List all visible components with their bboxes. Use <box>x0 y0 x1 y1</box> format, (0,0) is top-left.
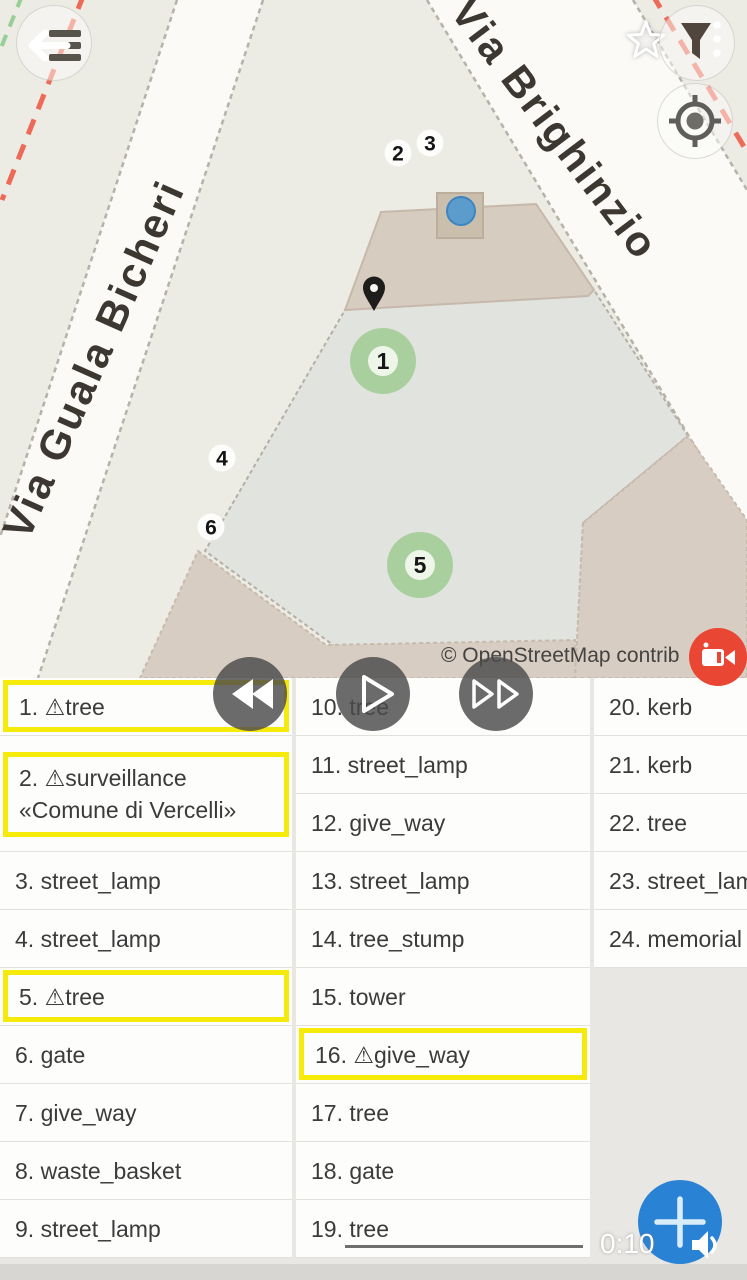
map-number-badge[interactable]: 6 <box>198 514 225 541</box>
list-item[interactable]: 9. street_lamp <box>0 1200 292 1258</box>
list-item[interactable]: 11. street_lamp <box>296 736 590 794</box>
list-item-label: 8. waste_basket <box>15 1155 292 1187</box>
video-camera-icon <box>697 636 739 678</box>
list-item[interactable]: 12. give_way <box>296 794 590 852</box>
list-item[interactable]: 20. kerb <box>594 678 747 736</box>
list-item-label: 12. give_way <box>311 807 590 839</box>
list-item-label: 11. street_lamp <box>311 749 590 781</box>
list-item-label: 20. kerb <box>609 691 747 723</box>
poi-list-column-3: 20. kerb21. kerb22. tree23. street_lamp2… <box>594 678 747 968</box>
list-item-label: 13. street_lamp <box>311 865 590 897</box>
filter-button[interactable] <box>659 5 735 81</box>
locate-me-button[interactable] <box>657 83 733 159</box>
gps-location-dot <box>447 197 475 225</box>
list-item[interactable]: 24. memorial <box>594 910 747 968</box>
svg-text:3: 3 <box>424 133 436 156</box>
play-icon <box>336 657 410 731</box>
list-item-label: 15. tower <box>311 981 590 1013</box>
back-arrow-list-icon <box>17 6 91 80</box>
gps-target-icon <box>658 84 732 158</box>
app-screen: Via Guala Bicheri Via Brighinzio 234615 … <box>0 0 747 1280</box>
list-item[interactable]: 23. street_lamp <box>594 852 747 910</box>
svg-text:5: 5 <box>414 552 427 578</box>
poi-list-column-2: 10. tree11. street_lamp12. give_way13. s… <box>296 678 590 1258</box>
svg-text:4: 4 <box>216 448 228 471</box>
list-item-label: 3. street_lamp <box>15 865 292 897</box>
list-item-label: 14. tree_stump <box>311 923 590 955</box>
video-timestamp: 0:10 <box>600 1228 655 1260</box>
map-view[interactable]: Via Guala Bicheri Via Brighinzio 234615 <box>0 0 747 678</box>
list-item-label: 4. street_lamp <box>15 923 292 955</box>
list-item[interactable]: 22. tree <box>594 794 747 852</box>
list-item[interactable]: 14. tree_stump <box>296 910 590 968</box>
poi-list-column-1: 1. ⚠tree2. ⚠surveillance«Comune di Verce… <box>0 678 292 1258</box>
list-item[interactable]: 13. street_lamp <box>296 852 590 910</box>
list-item-label: 6. gate <box>15 1039 292 1071</box>
list-item[interactable]: 7. give_way <box>0 1084 292 1142</box>
list-item-label: 23. street_lamp <box>609 865 747 897</box>
list-item-label: 21. kerb <box>609 749 747 781</box>
list-item[interactable]: 3. street_lamp <box>0 852 292 910</box>
rewind-button[interactable] <box>213 657 287 731</box>
video-progress-line <box>345 1245 583 1248</box>
back-button[interactable] <box>16 5 92 81</box>
svg-text:6: 6 <box>205 517 217 540</box>
poi-list: 1. ⚠tree2. ⚠surveillance«Comune di Verce… <box>0 678 747 1264</box>
list-item[interactable]: 4. street_lamp <box>0 910 292 968</box>
list-item-label: 2. ⚠surveillance <box>19 762 292 794</box>
list-item-label: 17. tree <box>311 1097 590 1129</box>
list-item-label: 5. ⚠tree <box>19 981 292 1013</box>
list-item-label-line2: «Comune di Vercelli» <box>19 794 292 826</box>
list-item[interactable]: 21. kerb <box>594 736 747 794</box>
list-item[interactable]: 2. ⚠surveillance«Comune di Vercelli» <box>0 736 292 852</box>
list-item[interactable]: 15. tower <box>296 968 590 1026</box>
speaker-icon[interactable] <box>686 1226 724 1264</box>
list-item-label: 22. tree <box>609 807 747 839</box>
list-item[interactable]: 8. waste_basket <box>0 1142 292 1200</box>
svg-text:2: 2 <box>392 143 404 166</box>
list-item-label: 18. gate <box>311 1155 590 1187</box>
fast-forward-button[interactable] <box>459 657 533 731</box>
fast-forward-icon <box>459 657 533 731</box>
list-item-label: 9. street_lamp <box>15 1213 292 1245</box>
svg-text:1: 1 <box>377 348 390 374</box>
list-item[interactable]: 18. gate <box>296 1142 590 1200</box>
list-item-label: 16. ⚠give_way <box>315 1039 590 1071</box>
list-item-label: 24. memorial <box>609 923 747 955</box>
list-item[interactable]: 17. tree <box>296 1084 590 1142</box>
rewind-icon <box>213 657 287 731</box>
list-item-label: 7. give_way <box>15 1097 292 1129</box>
list-item[interactable]: 16. ⚠give_way <box>296 1026 590 1084</box>
map-number-badge[interactable]: 4 <box>209 445 236 472</box>
list-item[interactable]: 6. gate <box>0 1026 292 1084</box>
list-item[interactable]: 19. tree <box>296 1200 590 1258</box>
filter-funnel-icon <box>660 6 734 80</box>
video-letterbox-bar <box>0 1264 747 1280</box>
map-green-marker[interactable]: 5 <box>387 532 453 598</box>
map-green-marker[interactable]: 1 <box>350 328 416 394</box>
play-button[interactable] <box>336 657 410 731</box>
record-video-button[interactable] <box>689 628 747 686</box>
map-number-badge[interactable]: 3 <box>417 130 444 157</box>
list-item-label: 19. tree <box>311 1213 590 1245</box>
list-item[interactable]: 5. ⚠tree <box>0 968 292 1026</box>
map-number-badge[interactable]: 2 <box>385 140 412 167</box>
